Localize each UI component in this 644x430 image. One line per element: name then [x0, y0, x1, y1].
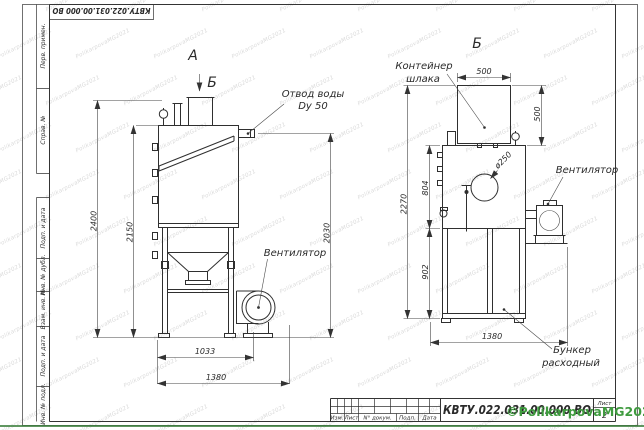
water-outlet-pipe: [239, 130, 255, 138]
extension-lines-b: [404, 73, 568, 346]
hopper-bunker: [443, 229, 526, 319]
dim-2150: 2150: [126, 222, 135, 242]
view-a-label: А: [187, 48, 198, 64]
fan-front: [237, 291, 276, 338]
diameter-label: ø250: [492, 150, 513, 171]
valve-handle: [462, 186, 472, 232]
strip-label: Инв. № подл.: [40, 383, 47, 424]
dim-1380-left: 1380: [206, 373, 226, 382]
view-b: Б: [395, 36, 618, 369]
hopper-funnel: [168, 253, 229, 285]
leader-dot: [483, 126, 486, 129]
titleblock-col-data: Дата: [421, 416, 437, 422]
strip-label: Перв. примен.: [40, 23, 47, 68]
bunker-details: [442, 229, 526, 323]
titleblock-col-izm: Изм.: [331, 416, 344, 422]
drawing-canvas: КВТУ.022.031.00.000 ВО Перв. примен. Спр…: [0, 0, 644, 430]
strip-label: Справ. №: [40, 115, 47, 144]
dim-500-right: 500: [533, 106, 542, 121]
dim-2270: 2270: [400, 194, 409, 214]
water-outlet-label-2: Dy 50: [298, 101, 328, 112]
machine-body-b: [443, 146, 526, 229]
pressure-gauge-b: [512, 131, 520, 146]
cabinet-details: [153, 136, 239, 259]
view-b-label: Б: [472, 36, 482, 52]
inlet-hole-250: [471, 174, 498, 201]
green-watermark-line: [0, 425, 644, 427]
cabinet-body: [159, 126, 239, 228]
hinge-pin: [440, 210, 447, 217]
view-b-dimensions: 500 500 2270 804 902 1380: [400, 67, 568, 346]
view-a-dimensions: 2400 2150 2030 1033 1380: [90, 101, 335, 385]
dim-1033: 1033: [195, 347, 215, 356]
strip-label: Подп. и дата: [40, 335, 47, 376]
leader-dot: [503, 308, 506, 311]
slag-container-label-2: шлака: [406, 74, 440, 85]
side-pipe: [173, 98, 215, 126]
drawing-sheet: PolikarpovaMG2021PolikarpovaMG2021Polika…: [0, 0, 644, 430]
top-stamp-text: КВТУ.022.031.00.000 ВО: [52, 6, 150, 15]
slag-container-box: [458, 86, 511, 144]
titleblock-col-podp: Подп.: [399, 416, 416, 422]
left-strip-bottom: Подп. и дата Инв. № дубл. Взам. инв. № П…: [37, 198, 50, 425]
dim-902: 902: [421, 264, 430, 279]
water-outlet-label-1: Отвод воды: [282, 89, 345, 100]
view-a: А Б: [90, 48, 345, 384]
support-legs: [159, 228, 236, 338]
pressure-gauge: [159, 108, 167, 126]
fan-label-left: Вентилятор: [264, 248, 327, 259]
slag-container-label-1: Контейнер: [395, 61, 452, 72]
hopper-label-2: расходный: [541, 358, 600, 369]
left-strip-top: Перв. примен. Справ. №: [37, 5, 50, 174]
dim-500-top: 500: [476, 67, 491, 76]
dim-804: 804: [421, 180, 430, 195]
fan-side: [526, 201, 568, 244]
inner-frame: [50, 5, 616, 422]
strip-label: Подп. и дата: [40, 207, 47, 248]
hopper-label-1: Бункер: [553, 345, 591, 356]
leader-dot: [247, 132, 250, 135]
view-a-annotations: Отвод воды Dy 50 Вентилятор: [247, 89, 345, 308]
titleblock-col-ndokum: N° докум.: [363, 416, 392, 422]
view-b-annotations: Контейнер шлака ø250 Вентилятор Бункер р…: [395, 61, 618, 369]
dim-2400: 2400: [90, 211, 99, 231]
titleblock-col-list: Лист: [344, 416, 360, 422]
copyright-watermark: ©PolikarpovaMG2021: [506, 404, 644, 419]
dim-1380-right: 1380: [482, 332, 502, 341]
chimney-duct: [189, 98, 213, 126]
strip-label: Взам. инв. №: [40, 289, 47, 330]
view-b-marker-letter: Б: [207, 75, 217, 91]
leader-dot: [547, 203, 550, 206]
dim-2030: 2030: [323, 223, 332, 243]
fan-label-right: Вентилятор: [556, 165, 619, 176]
